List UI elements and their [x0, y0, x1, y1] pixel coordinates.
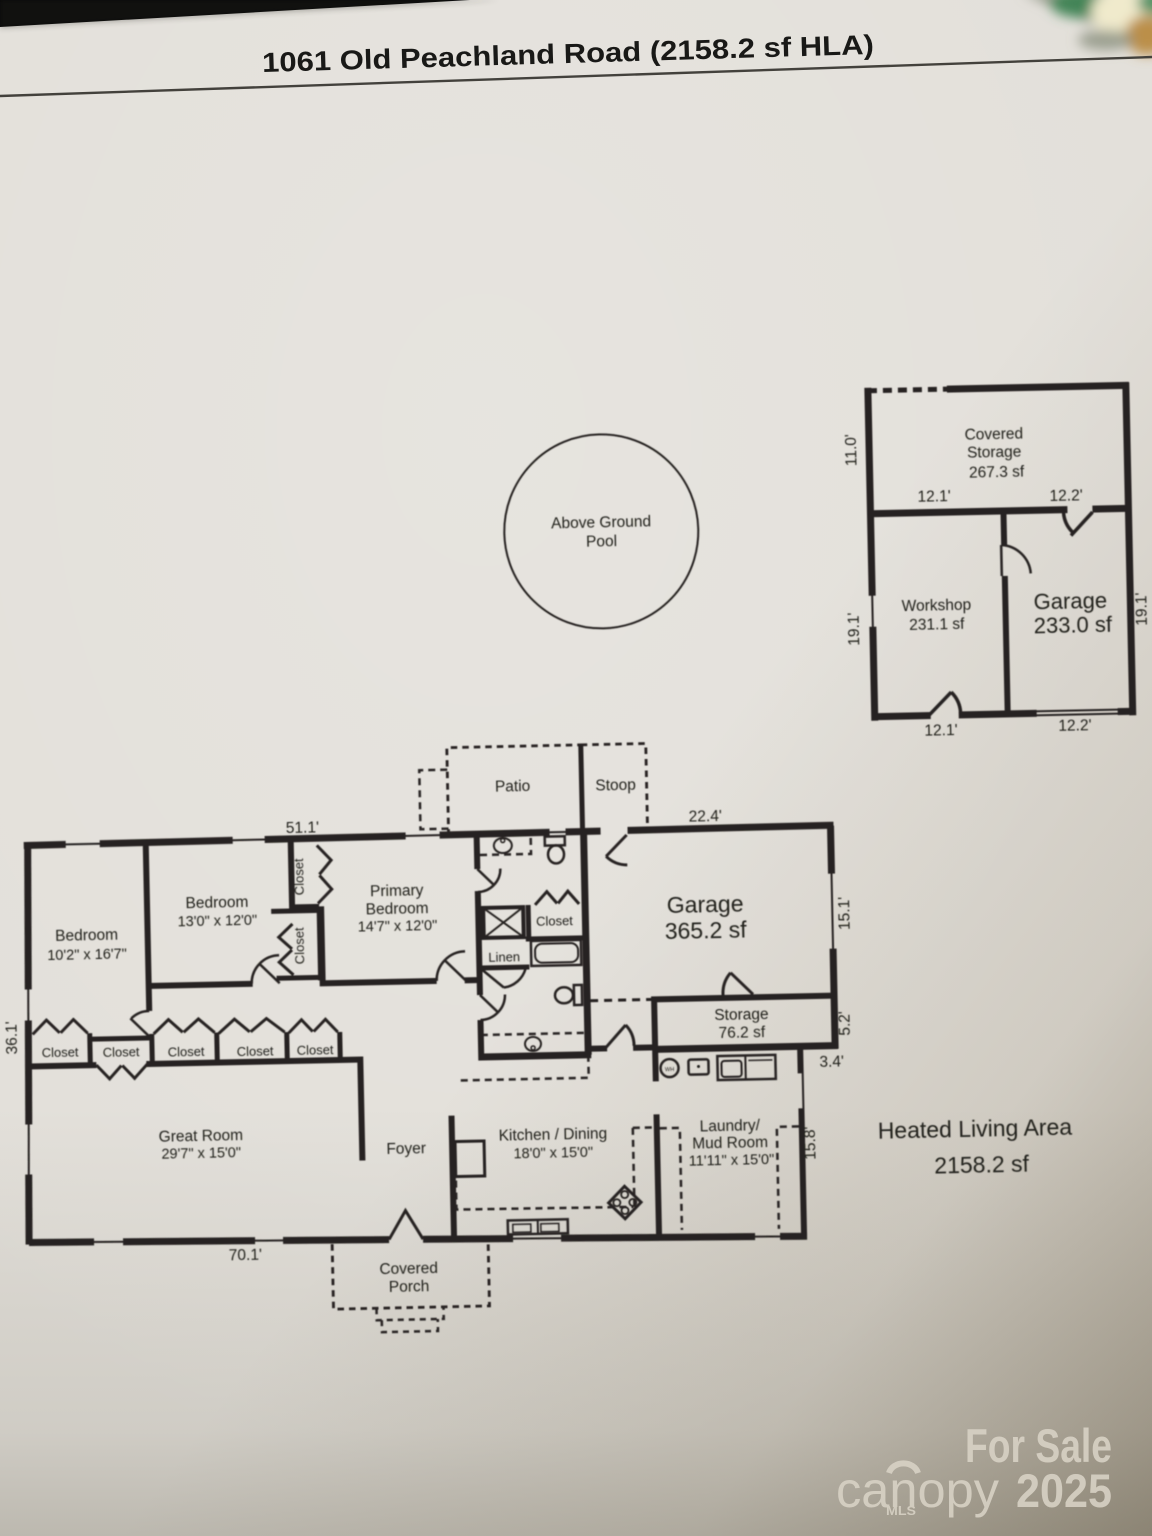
svg-text:3.4': 3.4'	[819, 1053, 844, 1071]
svg-text:WH: WH	[665, 1067, 674, 1073]
svg-text:Closet: Closet	[237, 1043, 275, 1059]
svg-text:Closet: Closet	[168, 1044, 206, 1060]
svg-text:Above Ground: Above Ground	[551, 513, 651, 532]
svg-text:5.2': 5.2'	[836, 1011, 854, 1036]
svg-text:Pool: Pool	[586, 533, 617, 551]
svg-text:12.2': 12.2'	[1049, 487, 1083, 505]
svg-text:Primary: Primary	[370, 882, 424, 900]
svg-text:Porch: Porch	[389, 1278, 430, 1296]
svg-text:15.1': 15.1'	[836, 897, 854, 931]
svg-text:267.3 sf: 267.3 sf	[969, 464, 1025, 482]
svg-text:15.8': 15.8'	[802, 1126, 820, 1160]
svg-text:36.1': 36.1'	[3, 1021, 21, 1055]
svg-text:Foyer: Foyer	[386, 1140, 426, 1158]
svg-text:18'0" x 15'0": 18'0" x 15'0"	[513, 1145, 593, 1163]
svg-text:70.1': 70.1'	[229, 1247, 263, 1265]
svg-text:19.1': 19.1'	[1133, 592, 1151, 626]
svg-text:Bedroom: Bedroom	[185, 894, 248, 912]
svg-text:51.1': 51.1'	[286, 819, 320, 837]
svg-text:2158.2 sf: 2158.2 sf	[934, 1151, 1030, 1179]
svg-text:Closet: Closet	[292, 927, 308, 965]
svg-text:Closet: Closet	[103, 1044, 141, 1060]
svg-text:11.0': 11.0'	[843, 434, 861, 466]
svg-text:231.1 sf: 231.1 sf	[909, 616, 965, 634]
svg-text:365.2 sf: 365.2 sf	[664, 916, 747, 944]
svg-text:22.4': 22.4'	[689, 808, 723, 826]
svg-text:13'0" x 12'0": 13'0" x 12'0"	[177, 913, 257, 931]
svg-text:19.1': 19.1'	[846, 612, 864, 646]
svg-text:Bedroom: Bedroom	[366, 900, 429, 918]
svg-text:Kitchen / Dining: Kitchen / Dining	[498, 1125, 607, 1144]
svg-text:Heated Living Area: Heated Living Area	[877, 1114, 1072, 1144]
svg-text:12.2': 12.2'	[1058, 717, 1092, 735]
svg-text:10'2" x 16'7": 10'2" x 16'7"	[47, 946, 127, 964]
svg-text:Mud Room: Mud Room	[692, 1134, 768, 1153]
svg-text:Storage: Storage	[714, 1006, 769, 1024]
svg-text:Covered: Covered	[964, 426, 1023, 444]
svg-text:Workshop: Workshop	[901, 597, 971, 615]
svg-text:MLS: MLS	[886, 1503, 916, 1518]
svg-text:Covered: Covered	[379, 1260, 438, 1278]
svg-text:14'7" x 12'0": 14'7" x 12'0"	[358, 918, 438, 936]
svg-text:2025: 2025	[1016, 1464, 1112, 1517]
svg-text:Closet: Closet	[291, 858, 307, 896]
svg-text:29'7" x 15'0": 29'7" x 15'0"	[161, 1145, 241, 1163]
svg-text:Storage: Storage	[967, 444, 1022, 462]
svg-text:233.0 sf: 233.0 sf	[1033, 612, 1113, 639]
svg-text:Linen: Linen	[488, 949, 520, 965]
svg-text:Patio: Patio	[495, 778, 531, 796]
svg-text:Closet: Closet	[297, 1042, 335, 1058]
svg-text:11'11" x 15'0": 11'11" x 15'0"	[689, 1152, 775, 1170]
svg-text:Laundry/: Laundry/	[699, 1117, 760, 1135]
svg-text:12.1': 12.1'	[924, 722, 958, 740]
svg-text:76.2 sf: 76.2 sf	[718, 1024, 766, 1042]
svg-text:Great Room: Great Room	[158, 1127, 243, 1146]
svg-text:Bedroom: Bedroom	[55, 927, 118, 945]
svg-text:12.1': 12.1'	[917, 488, 951, 506]
svg-text:Closet: Closet	[41, 1044, 79, 1060]
svg-text:Stoop: Stoop	[595, 777, 636, 795]
svg-text:Closet: Closet	[536, 913, 574, 929]
svg-text:Garage: Garage	[1033, 588, 1107, 615]
svg-text:Garage: Garage	[666, 890, 743, 918]
